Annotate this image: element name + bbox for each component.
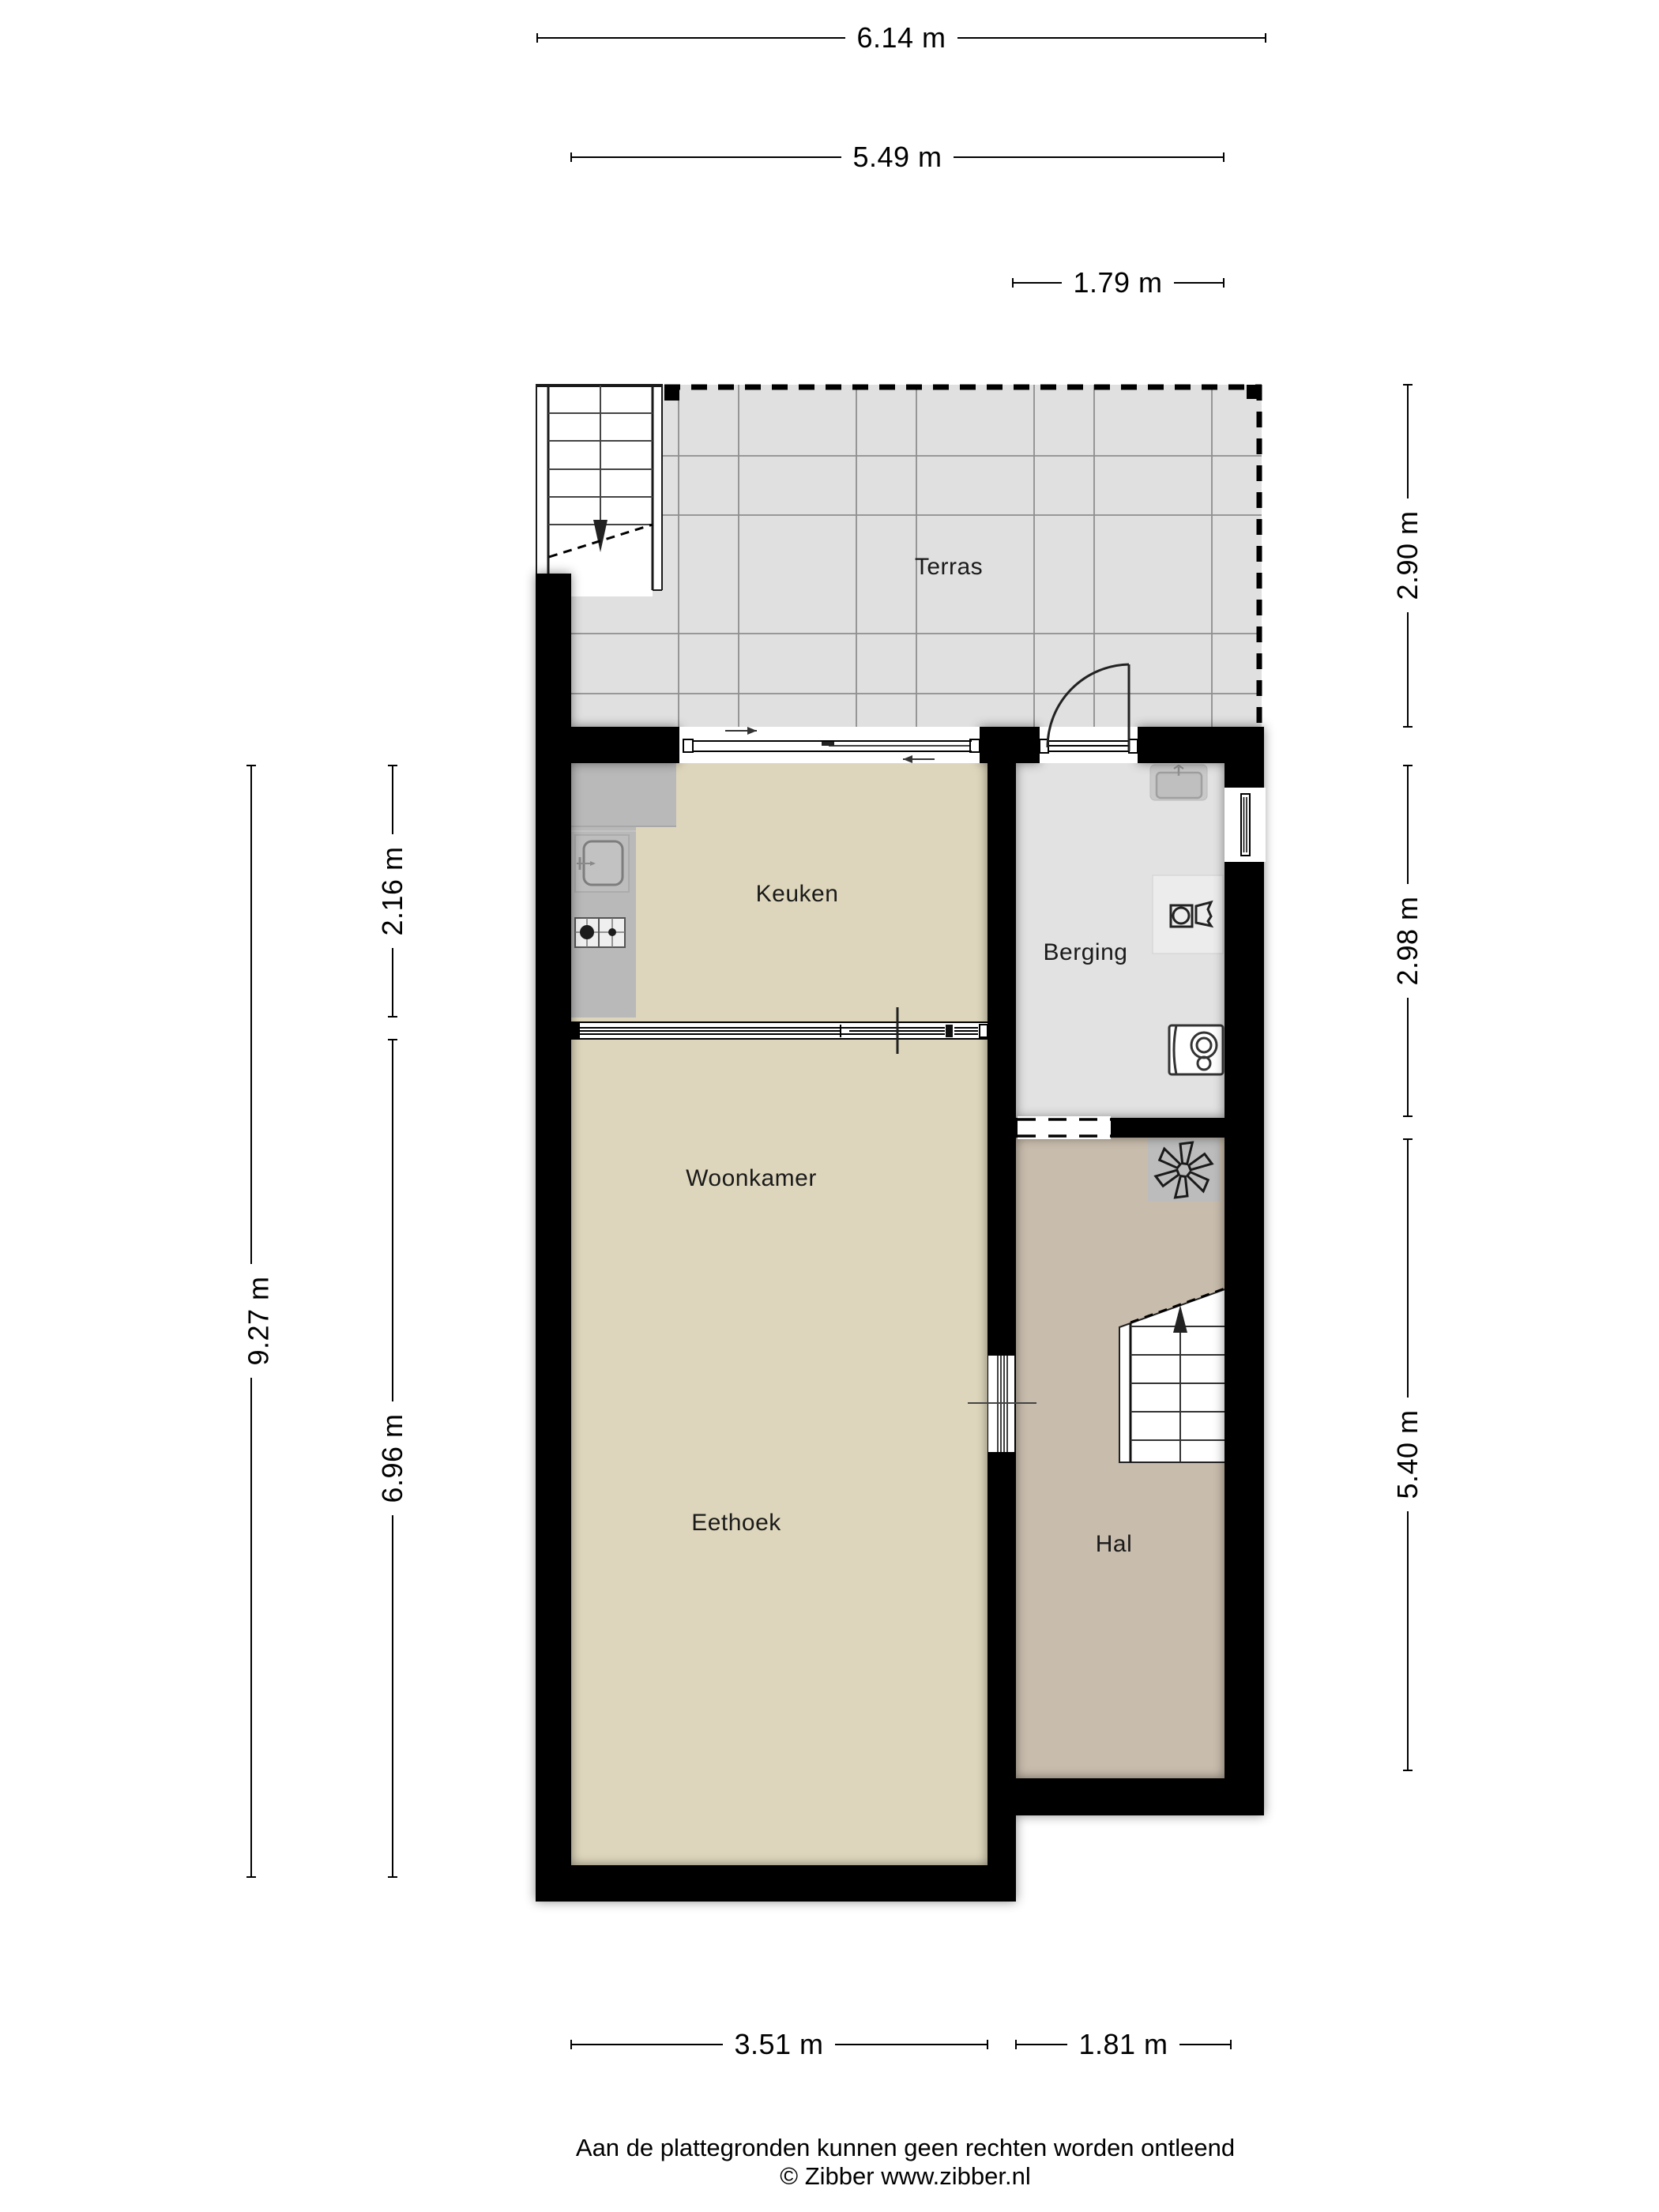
svg-text:Eethoek: Eethoek [691, 1510, 781, 1536]
svg-text:2.90 m: 2.90 m [1391, 510, 1424, 600]
svg-text:3.51 m: 3.51 m [734, 2028, 823, 2060]
svg-text:Hal: Hal [1096, 1531, 1133, 1557]
svg-text:6.14 m: 6.14 m [856, 21, 946, 54]
svg-text:© Zibber www.zibber.nl: © Zibber www.zibber.nl [780, 2162, 1030, 2190]
svg-text:6.96 m: 6.96 m [376, 1413, 408, 1503]
svg-text:Terras: Terras [915, 554, 983, 580]
svg-text:2.98 m: 2.98 m [1391, 896, 1424, 985]
svg-text:Aan de plattegronden kunnen ge: Aan de plattegronden kunnen geen rechten… [576, 2134, 1235, 2161]
svg-text:5.49 m: 5.49 m [852, 141, 942, 173]
svg-text:Berging: Berging [1044, 939, 1128, 965]
svg-text:Woonkamer: Woonkamer [686, 1165, 817, 1191]
svg-text:1.79 m: 1.79 m [1073, 266, 1162, 299]
svg-text:Keuken: Keuken [756, 881, 839, 907]
svg-text:1.81 m: 1.81 m [1078, 2028, 1168, 2060]
svg-text:9.27 m: 9.27 m [243, 1276, 275, 1365]
svg-text:5.40 m: 5.40 m [1391, 1409, 1424, 1499]
svg-text:2.16 m: 2.16 m [376, 846, 408, 935]
